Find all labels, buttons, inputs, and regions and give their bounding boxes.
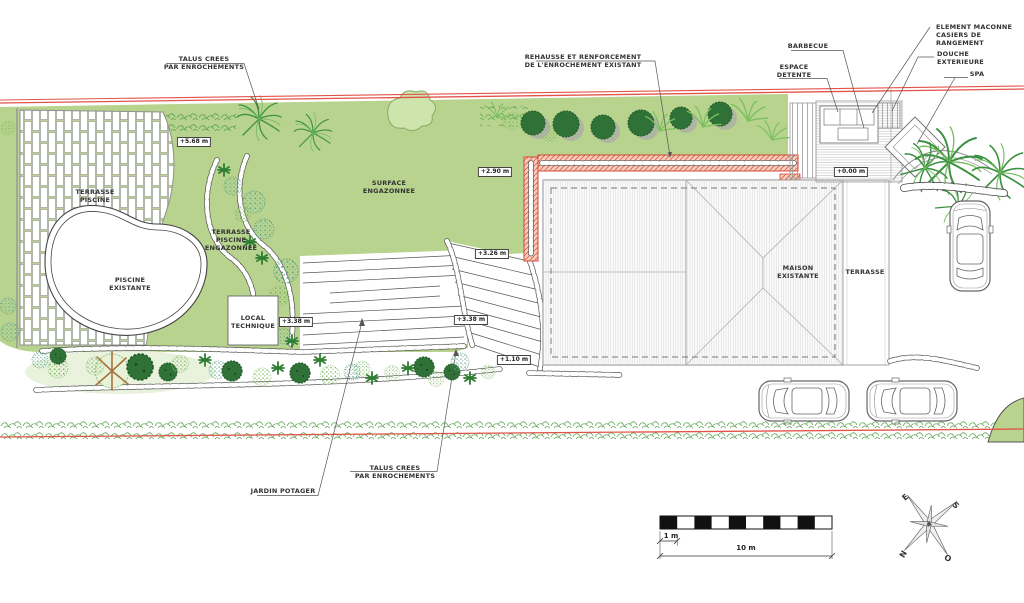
label-jardin-potager: JARDIN POTAGER [251,487,316,495]
label-talus-top: TALUS CREES PAR ENROCHEMENTS [164,55,244,71]
left-edge-shrub [0,298,16,314]
car-parked-bottom-2 [867,378,957,424]
elevation-house-level: +0.00 m [834,167,868,177]
label-espace-detente: ESPACE DETENTE [777,63,811,79]
compass-o: O [943,553,953,564]
left-edge-shrub [1,121,15,135]
label-maison-existante: MAISON EXISTANTE [777,264,819,280]
label-talus-bottom: TALUS CREES PAR ENROCHEMENTS [355,464,435,480]
label-terrasse-maison: TERRASSE [845,268,884,276]
compass-e: E [900,492,910,502]
label-element-maconne: ELEMENT MACONNE CASIERS DE RANGEMENT [936,23,1012,47]
elevation-lawn-mid: +3.26 m [475,249,509,259]
label-local-technique: LOCAL TECHNIQUE [231,314,275,330]
elevation-lower-garden: +1.10 m [497,355,531,365]
label-rehausse: REHAUSSE ET RENFORCEMENT DE L'ENROCHEMEN… [525,53,642,69]
compass-n: N [898,549,909,559]
site-plan-drawing: E S N O [0,0,1024,603]
compass-rose: E S N O [898,492,961,564]
label-barbecue: BARBECUE [788,42,828,50]
label-terrasse-piscine-engazonnee: TERRASSE PISCINE ENGAZONNEE [205,228,257,252]
label-surface-engazonnee: SURFACE ENGAZONNEE [363,179,415,195]
label-douche: DOUCHE EXTERIEURE [937,50,984,66]
label-spa: SPA [970,70,984,78]
douche-unit [878,103,900,128]
scale-label-10m: 10 m [736,544,755,552]
left-edge-shrub [1,323,19,341]
green-mound [988,398,1024,442]
compass-s: S [950,500,961,511]
label-terrasse-piscine: TERRASSE PISCINE [75,188,114,204]
elevation-steps-right: +3.38 m [454,315,488,325]
elevation-terrace-top: +5.68 m [177,137,211,147]
car-parked-right [947,201,993,291]
scale-bar [657,516,835,559]
elevation-steps-left: +3.38 m [279,317,313,327]
scale-label-1m: 1 m [664,532,679,540]
label-piscine-existante: PISCINE EXISTANTE [109,276,151,292]
elevation-lawn-upper: +2.90 m [478,167,512,177]
bottom-hedge-strip [0,421,1024,441]
site-plan: E S N O TALUS CREES PAR ENROCHEMENTS REH… [0,0,1024,603]
car-parked-bottom-1 [759,378,849,424]
steps [300,250,467,352]
lower-garden-strip [25,346,500,394]
